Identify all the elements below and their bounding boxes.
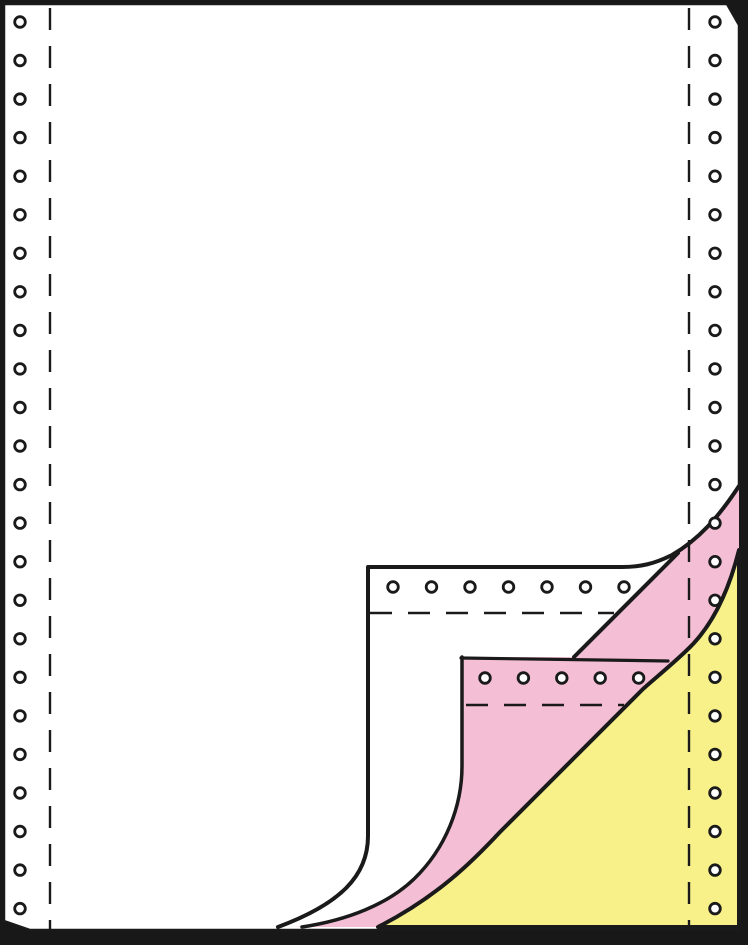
- sprocket-hole: [710, 55, 721, 66]
- sprocket-hole: [710, 248, 721, 259]
- sprocket-hole: [15, 903, 26, 914]
- sprocket-hole: [710, 94, 721, 105]
- sprocket-hole: [15, 672, 26, 683]
- sprocket-hole: [710, 479, 721, 490]
- sprocket-hole: [710, 210, 721, 221]
- sprocket-hole: [15, 55, 26, 66]
- sprocket-hole: [557, 673, 568, 684]
- sprocket-hole: [710, 364, 721, 375]
- sprocket-hole: [710, 826, 721, 837]
- sprocket-hole: [710, 903, 721, 914]
- sprocket-hole: [426, 582, 437, 593]
- sprocket-hole: [465, 582, 476, 593]
- sprocket-hole: [15, 749, 26, 760]
- sprocket-hole: [518, 673, 529, 684]
- sprocket-hole: [15, 248, 26, 259]
- product-image-stage: [0, 0, 748, 945]
- sprocket-hole: [15, 171, 26, 182]
- sprocket-hole: [480, 673, 491, 684]
- sprocket-hole: [710, 865, 721, 876]
- sprocket-hole: [15, 518, 26, 529]
- sprocket-hole: [15, 826, 26, 837]
- sprocket-hole: [633, 673, 644, 684]
- sprocket-hole: [15, 287, 26, 298]
- sprocket-hole: [710, 171, 721, 182]
- sprocket-hole: [15, 788, 26, 799]
- sprocket-hole: [15, 325, 26, 336]
- sprocket-hole: [15, 402, 26, 413]
- sprocket-hole: [710, 711, 721, 722]
- sprocket-hole: [15, 711, 26, 722]
- sprocket-hole: [15, 94, 26, 105]
- sprocket-hole: [710, 287, 721, 298]
- sprocket-hole: [15, 479, 26, 490]
- sprocket-hole: [710, 556, 721, 567]
- sprocket-hole: [15, 17, 26, 28]
- sprocket-hole: [710, 17, 721, 28]
- sprocket-hole: [542, 582, 553, 593]
- sprocket-hole: [710, 325, 721, 336]
- sprocket-hole: [710, 518, 721, 529]
- sprocket-hole: [710, 132, 721, 143]
- sprocket-hole: [15, 210, 26, 221]
- sprocket-hole: [710, 788, 721, 799]
- sprocket-hole: [710, 441, 721, 452]
- sprocket-hole: [503, 582, 514, 593]
- sprocket-hole: [15, 556, 26, 567]
- sprocket-hole: [15, 595, 26, 606]
- sprocket-hole: [710, 595, 721, 606]
- sprocket-hole: [15, 132, 26, 143]
- sprocket-hole: [580, 582, 591, 593]
- continuous-paper-illustration: [0, 0, 748, 945]
- sprocket-hole: [15, 634, 26, 645]
- sprocket-hole: [15, 441, 26, 452]
- sprocket-hole: [710, 749, 721, 760]
- sprocket-hole: [388, 582, 399, 593]
- sprocket-hole: [619, 582, 630, 593]
- sprocket-hole: [15, 364, 26, 375]
- sprocket-hole: [710, 402, 721, 413]
- sprocket-hole: [15, 865, 26, 876]
- sprocket-hole: [710, 672, 721, 683]
- sprocket-hole: [710, 634, 721, 645]
- sprocket-hole: [595, 673, 606, 684]
